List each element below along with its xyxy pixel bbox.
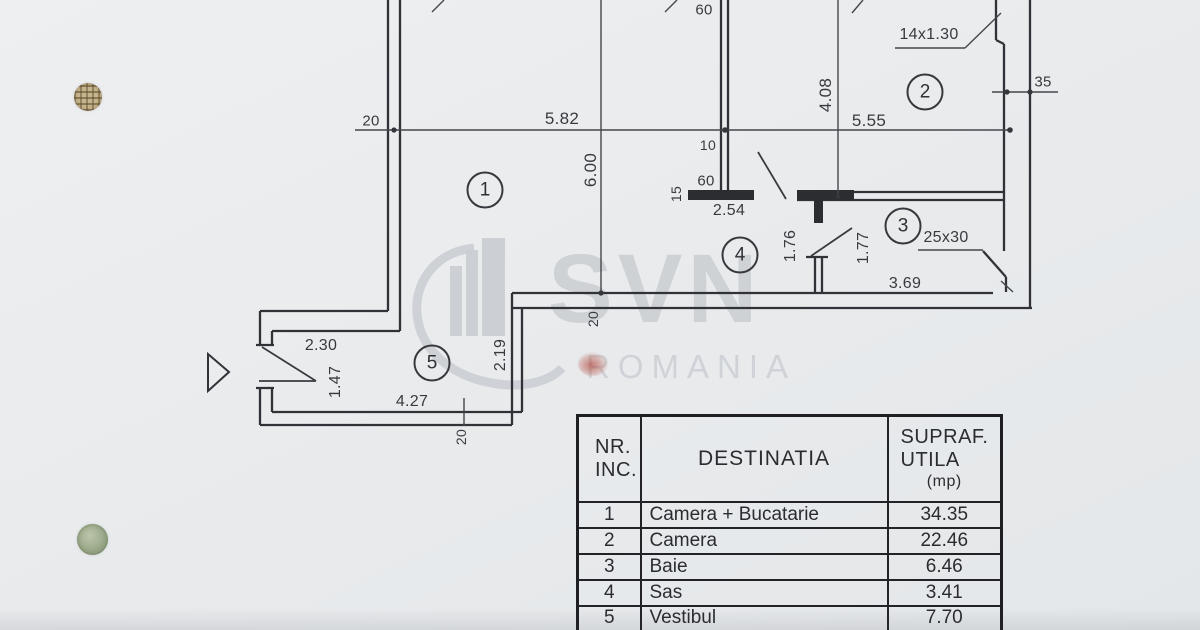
header-supraf-line2: UTILA (889, 449, 1001, 472)
room-number-marker: 4 (722, 237, 759, 274)
destination-cell: Camera (641, 528, 888, 554)
areas-table: NR. INC. DESTINATIA SUPRAF. UTILA (mp) 1… (576, 414, 1003, 630)
dimension-label: 4.08 (816, 78, 836, 112)
dimension-label: 20 (585, 311, 601, 327)
area-cell: 22.46 (888, 528, 1002, 554)
row-number-cell: 4 (578, 580, 641, 606)
header-nr-line1: NR. (579, 436, 640, 459)
dimension-label: 4.27 (396, 393, 428, 411)
table-row: 3Baie6.46 (578, 554, 1002, 580)
dimension-label: 25x30 (923, 229, 968, 247)
area-cell: 34.35 (888, 502, 1002, 528)
room-number-marker: 1 (467, 172, 504, 209)
dimension-label: 35 (1034, 74, 1051, 91)
dimension-label: 5.82 (545, 109, 579, 129)
header-destinatia: DESTINATIA (641, 416, 888, 502)
table-header-row: NR. INC. DESTINATIA SUPRAF. UTILA (mp) (578, 416, 1002, 502)
dimension-label: 60 (697, 173, 714, 190)
dimension-label: 2.54 (713, 202, 745, 220)
destination-cell: Camera + Bucatarie (641, 502, 888, 528)
destination-cell: Sas (641, 580, 888, 606)
scanned-floorplan-page: SVN ROMANIA 205.825.556.004.0814x1.30356… (0, 0, 1200, 630)
header-nr-inc: NR. INC. (578, 416, 641, 502)
dimension-label: 1.47 (327, 366, 345, 398)
room-number-marker: 2 (907, 74, 944, 111)
dimension-label: 1.77 (855, 232, 873, 264)
header-nr-line2: INC. (579, 459, 640, 482)
table-row: 4Sas3.41 (578, 580, 1002, 606)
dimension-label: 3.69 (889, 275, 921, 293)
row-number-cell: 3 (578, 554, 641, 580)
dimension-label: 5.55 (852, 111, 886, 131)
dimension-label: 1.76 (782, 230, 800, 262)
red-stain (578, 352, 608, 376)
table-row: 5Vestibul7.70 (578, 606, 1002, 630)
header-supraf-unit: (mp) (889, 472, 1001, 492)
room-number-marker: 3 (885, 208, 922, 245)
dimension-label: 20 (362, 113, 379, 130)
dimension-label: 2.19 (492, 339, 510, 371)
dimension-label: 20 (453, 429, 469, 445)
area-cell: 6.46 (888, 554, 1002, 580)
table-row: 1Camera + Bucatarie34.35 (578, 502, 1002, 528)
table-row: 2Camera22.46 (578, 528, 1002, 554)
header-destinatia-label: DESTINATIA (698, 447, 830, 470)
dimension-label: 6.00 (581, 153, 601, 187)
room-number-marker: 5 (414, 345, 451, 382)
area-cell: 7.70 (888, 606, 1002, 630)
row-number-cell: 2 (578, 528, 641, 554)
area-cell: 3.41 (888, 580, 1002, 606)
row-number-cell: 1 (578, 502, 641, 528)
dimension-label: 10 (700, 137, 716, 153)
dimension-label: 2.30 (305, 337, 337, 355)
dimension-label: 14x1.30 (899, 26, 958, 44)
dimension-label: 60 (695, 2, 712, 19)
dimension-label: 15 (668, 186, 684, 202)
destination-cell: Vestibul (641, 606, 888, 630)
destination-cell: Baie (641, 554, 888, 580)
header-suprafata: SUPRAF. UTILA (mp) (888, 416, 1002, 502)
header-supraf-line1: SUPRAF. (889, 426, 1001, 449)
row-number-cell: 5 (578, 606, 641, 630)
